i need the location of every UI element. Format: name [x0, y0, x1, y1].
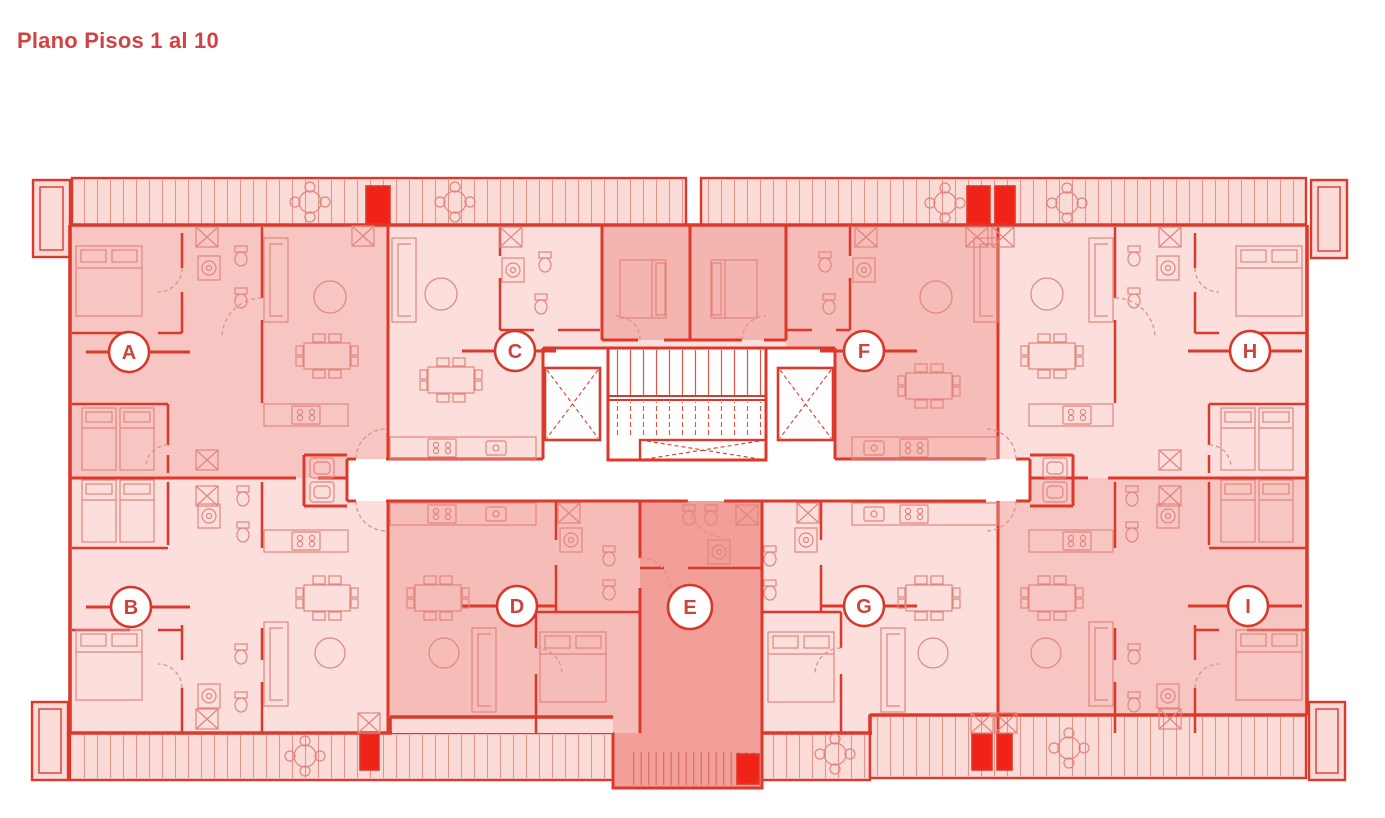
unit-label-c: C	[495, 331, 535, 371]
unit-label-h: H	[1230, 331, 1270, 371]
unit-letter: D	[510, 596, 524, 618]
balcony-bottom-left-band	[390, 717, 613, 733]
duct-shaft	[737, 754, 759, 784]
side-balcony-top-right-inner	[1318, 187, 1340, 251]
duct-shaft	[995, 186, 1015, 225]
unit-label-d: D	[497, 586, 537, 626]
unit-letter: A	[122, 342, 136, 364]
side-balcony-bottom-left-inner	[39, 709, 61, 773]
side-balcony-top-left-inner	[40, 187, 63, 250]
unit-letter: F	[858, 341, 870, 363]
unit-label-e: E	[668, 585, 712, 629]
hatch-bottom-left	[72, 735, 611, 778]
unit-letter: I	[1245, 596, 1251, 618]
unit-letter: E	[683, 597, 696, 619]
duct-shaft	[360, 734, 379, 770]
side-balcony-bottom-right-inner	[1316, 709, 1338, 773]
floor-plan-drawing: A B C D E F G	[0, 0, 1385, 818]
unit-label-b: B	[111, 587, 151, 627]
stairs-icon	[612, 350, 764, 396]
unit-label-i: I	[1228, 586, 1268, 626]
floor-plan-page: Plano Pisos 1 al 10	[0, 0, 1385, 818]
unit-letter: G	[856, 596, 872, 618]
unit-label-g: G	[844, 586, 884, 626]
unit-label-a: A	[109, 332, 149, 372]
hatch-bottom-right	[872, 717, 1304, 776]
duct-shaft	[366, 186, 390, 224]
corridor	[347, 459, 1030, 501]
unit-label-f: F	[844, 331, 884, 371]
unit-letter: H	[1243, 341, 1257, 363]
duct-shaft	[972, 734, 992, 770]
duct-shaft	[997, 734, 1012, 770]
unit-letter: C	[508, 341, 522, 363]
duct-shaft	[967, 186, 990, 225]
stairs-lower-icon	[612, 402, 764, 438]
center-bedrooms-area	[602, 225, 786, 340]
unit-letter: B	[124, 597, 138, 619]
